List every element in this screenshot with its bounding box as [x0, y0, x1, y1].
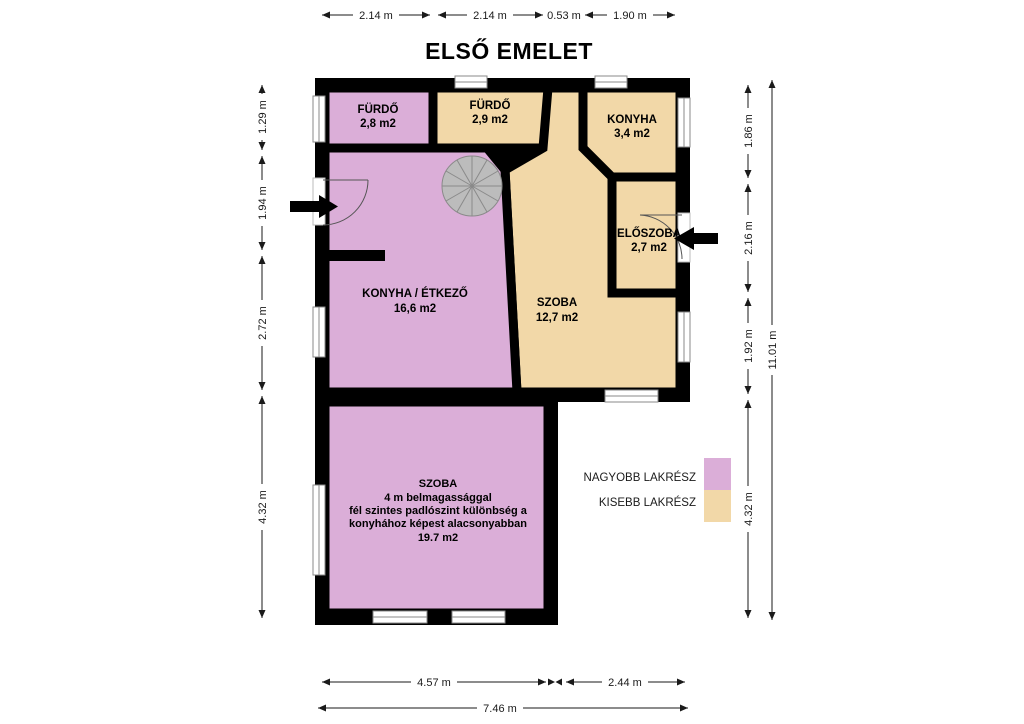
svg-text:7.46 m: 7.46 m — [483, 703, 517, 715]
svg-text:2,8 m2: 2,8 m2 — [360, 118, 396, 130]
window-right-2 — [678, 312, 690, 362]
window-bottom-2 — [452, 611, 505, 623]
svg-text:11.01 m: 11.01 m — [767, 331, 779, 370]
svg-text:2.14 m: 2.14 m — [359, 10, 393, 22]
svg-text:1.92 m: 1.92 m — [743, 329, 755, 363]
svg-text:1.86 m: 1.86 m — [743, 114, 755, 148]
svg-text:4 m belmagassággal: 4 m belmagassággal — [384, 492, 492, 504]
svg-text:2,7 m2: 2,7 m2 — [631, 242, 667, 254]
svg-text:FÜRDŐ: FÜRDŐ — [470, 99, 511, 112]
dimension-bottom-total: 7.46 m — [318, 701, 688, 715]
svg-text:SZOBA: SZOBA — [419, 478, 458, 490]
svg-text:SZOBA: SZOBA — [537, 297, 577, 309]
page-title: ELSŐ EMELET — [425, 37, 593, 64]
svg-text:2.16 m: 2.16 m — [743, 221, 755, 255]
dimension-right-total: 11.01 m — [765, 80, 779, 620]
svg-text:KONYHA / ÉTKEZŐ: KONYHA / ÉTKEZŐ — [362, 287, 468, 300]
window-bottom-middle — [605, 390, 658, 402]
window-left-1 — [313, 96, 325, 142]
spiral-staircase — [442, 156, 502, 216]
dimension-left: 1.29 m 1.94 m 2.72 m 4.32 m — [255, 85, 269, 618]
floor-plan-page: ELSŐ EMELET — [0, 0, 1024, 724]
legend-label-kisebb: KISEBB LAKRÉSZ — [599, 496, 696, 509]
svg-text:4.32 m: 4.32 m — [257, 490, 269, 524]
svg-text:KONYHA: KONYHA — [607, 114, 657, 126]
window-bottom-1 — [373, 611, 427, 623]
interior-wall-stub — [318, 250, 385, 261]
svg-text:FÜRDŐ: FÜRDŐ — [358, 103, 399, 116]
legend-swatch-nagyobb — [704, 458, 731, 490]
legend: NAGYOBB LAKRÉSZ KISEBB LAKRÉSZ — [584, 458, 731, 522]
svg-text:ELŐSZOBA: ELŐSZOBA — [617, 227, 681, 240]
svg-text:3,4 m2: 3,4 m2 — [614, 128, 650, 140]
svg-text:2.44 m: 2.44 m — [608, 677, 642, 689]
svg-text:16,6 m2: 16,6 m2 — [394, 303, 436, 315]
window-top-1 — [455, 76, 487, 88]
dimension-bottom: 4.57 m 2.44 m — [322, 675, 685, 689]
window-left-2 — [313, 307, 325, 357]
svg-text:4.57 m: 4.57 m — [417, 677, 451, 689]
svg-text:fél szintes padlószint különbs: fél szintes padlószint különbség a — [349, 505, 528, 517]
svg-text:12,7 m2: 12,7 m2 — [536, 312, 578, 324]
svg-text:konyhához képest alacsonyabban: konyhához képest alacsonyabban — [349, 518, 527, 530]
dimension-right: 1.86 m 2.16 m 1.92 m 4.32 m — [741, 85, 755, 618]
svg-text:2.72 m: 2.72 m — [257, 306, 269, 340]
legend-swatch-kisebb — [704, 490, 731, 522]
svg-text:1.90 m: 1.90 m — [613, 10, 647, 22]
svg-text:4.32 m: 4.32 m — [743, 492, 755, 526]
svg-text:19.7 m2: 19.7 m2 — [418, 532, 458, 544]
legend-label-nagyobb: NAGYOBB LAKRÉSZ — [584, 471, 696, 484]
svg-text:1.94 m: 1.94 m — [257, 186, 269, 220]
window-right-1 — [678, 98, 690, 147]
svg-text:0.53 m: 0.53 m — [547, 10, 581, 22]
dimension-top: 2.14 m 2.14 m 0.53 m 1.90 m — [322, 8, 675, 22]
svg-text:2.14 m: 2.14 m — [473, 10, 507, 22]
floor-plan-canvas: ELSŐ EMELET — [0, 0, 1024, 724]
svg-text:2,9 m2: 2,9 m2 — [472, 114, 508, 126]
window-top-2 — [595, 76, 627, 88]
window-left-3 — [313, 485, 325, 575]
svg-text:1.29 m: 1.29 m — [257, 100, 269, 134]
